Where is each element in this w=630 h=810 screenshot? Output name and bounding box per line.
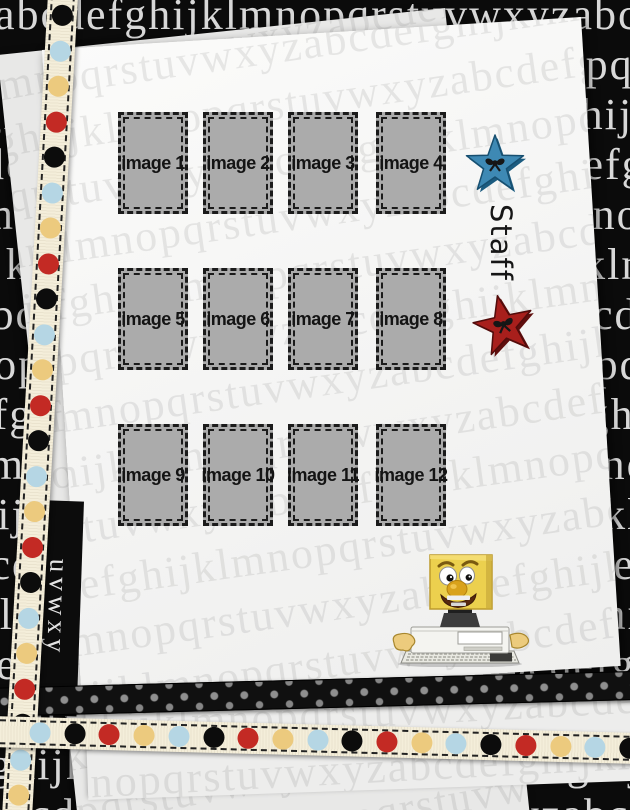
image-placeholder-5[interactable]: image 5	[118, 268, 188, 370]
image-placeholder-label: image 1	[121, 153, 185, 174]
ribbon-dot	[25, 465, 47, 487]
image-placeholder-label: image 7	[291, 309, 355, 330]
image-placeholder-label: image 6	[206, 309, 270, 330]
image-placeholder-1[interactable]: image 1	[118, 112, 188, 214]
ribbon-dot	[203, 727, 225, 749]
image-placeholder-11[interactable]: image 11	[288, 424, 358, 526]
image-placeholder-label: image 2	[206, 153, 270, 174]
image-placeholder-label: image 11	[287, 465, 359, 486]
ribbon-dot	[41, 181, 63, 203]
image-placeholder-4[interactable]: image 4	[376, 112, 446, 214]
image-placeholder-label: image 10	[201, 465, 274, 486]
image-placeholder-label: image 4	[379, 153, 443, 174]
image-placeholder-3[interactable]: image 3	[288, 112, 358, 214]
ribbon-dot	[29, 394, 51, 416]
page-title: Staff	[484, 204, 518, 282]
image-placeholder-2[interactable]: image 2	[203, 112, 273, 214]
image-placeholder-9[interactable]: image 9	[118, 424, 188, 526]
ribbon-dot	[17, 607, 39, 629]
ribbon-dot	[13, 678, 35, 700]
ribbon-dot	[33, 323, 55, 345]
ribbon-dot	[9, 749, 31, 771]
ribbon-dot	[21, 536, 43, 558]
image-placeholder-label: image 12	[374, 465, 447, 486]
image-placeholder-label: image 3	[291, 153, 355, 174]
image-placeholder-10[interactable]: image 10	[203, 424, 273, 526]
image-placeholder-8[interactable]: image 8	[376, 268, 446, 370]
ribbon-dot	[307, 729, 329, 751]
image-placeholder-7[interactable]: image 7	[288, 268, 358, 370]
blue-star-icon	[464, 132, 526, 199]
ribbon-dot	[411, 732, 433, 754]
ribbon-dot	[515, 735, 537, 757]
image-placeholder-label: image 9	[121, 465, 185, 486]
ribbon-dot	[64, 723, 86, 745]
computer-mascot-icon	[390, 551, 532, 672]
image-placeholder-label: image 5	[121, 309, 185, 330]
red-star-icon	[466, 286, 543, 367]
ribbon-dot	[49, 40, 71, 62]
ribbon-dot	[37, 252, 59, 274]
ribbon-dot	[45, 111, 67, 133]
ribbon-dot	[168, 726, 190, 748]
image-placeholder-6[interactable]: image 6	[203, 268, 273, 370]
image-placeholder-label: image 8	[379, 309, 443, 330]
scrapbook-page: abcdefghijklmnopqrstuvwxyzabcdefghijklmn…	[0, 0, 630, 810]
ribbon-dot	[550, 736, 572, 758]
image-placeholder-12[interactable]: image 12	[376, 424, 446, 526]
